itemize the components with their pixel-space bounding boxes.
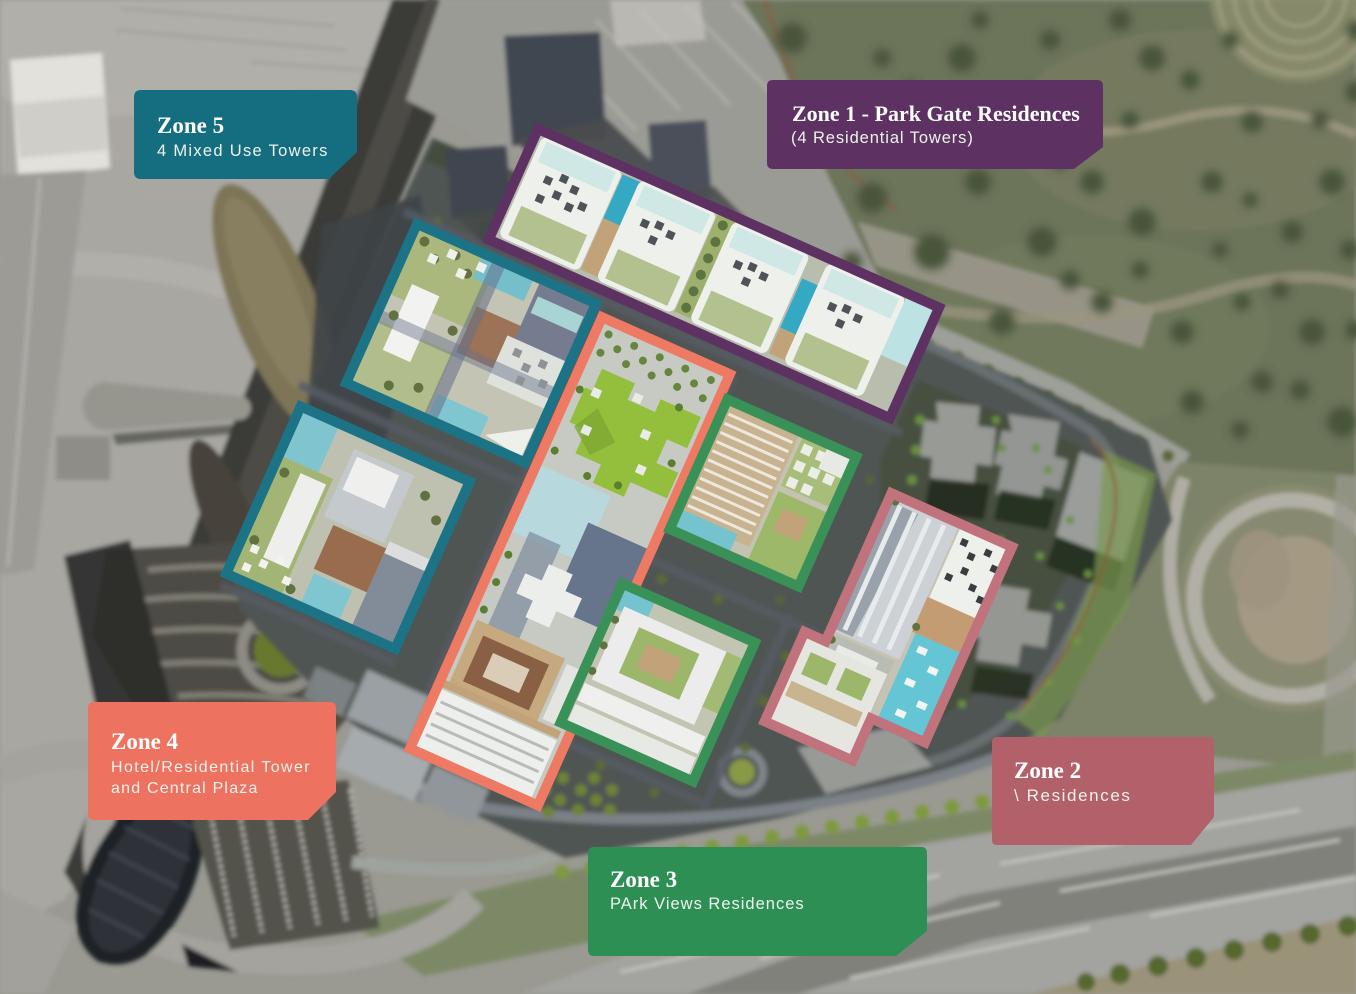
svg-text:Zone 2: Zone 2 <box>1014 758 1081 783</box>
svg-text:Hotel/Residential Tower: Hotel/Residential Tower <box>111 759 311 776</box>
svg-text:Zone 1 - Park Gate Residences: Zone 1 - Park Gate Residences <box>792 101 1080 126</box>
svg-text:(4 Residential Towers): (4 Residential Towers) <box>791 129 974 147</box>
svg-text:Zone 3: Zone 3 <box>610 867 677 892</box>
svg-text:PArk Views Residences: PArk Views Residences <box>610 895 805 913</box>
svg-text:and Central Plaza: and Central Plaza <box>111 780 259 797</box>
svg-text:4 Mixed Use Towers: 4 Mixed Use Towers <box>157 142 329 160</box>
svg-text:Zone 5: Zone 5 <box>157 113 224 138</box>
svg-text:\ Residences: \ Residences <box>1014 786 1131 805</box>
svg-text:Zone 4: Zone 4 <box>111 729 179 754</box>
